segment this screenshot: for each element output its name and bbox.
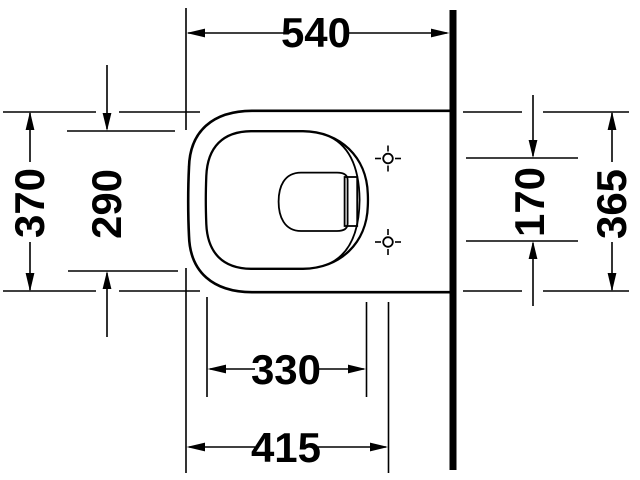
dimension-label-290: 290 (83, 169, 130, 239)
arrow-down-icon (608, 273, 617, 292)
dimension-label-370: 370 (6, 168, 53, 238)
dimension-label-415: 415 (251, 424, 321, 471)
arrow-left-icon (187, 29, 206, 38)
flush-opening-rect (345, 177, 358, 226)
dimension-label-365: 365 (588, 169, 635, 239)
arrow-down-icon (103, 113, 112, 131)
wall-line (450, 10, 457, 470)
dimension-label-330: 330 (251, 346, 321, 393)
dimension-bottom-inner-330: 330 (207, 297, 367, 397)
arrow-right-icon (370, 443, 388, 452)
dimension-label-170: 170 (506, 167, 553, 237)
arrow-down-icon (26, 273, 35, 292)
toilet-rim-outline (206, 131, 368, 269)
arrow-right-icon (431, 29, 450, 38)
arrow-up-icon (529, 241, 538, 259)
sump-outline (279, 173, 348, 231)
arrow-up-icon (103, 271, 112, 289)
dimension-label-540: 540 (281, 9, 351, 56)
toilet-dimension-drawing: 540 370 290 170 (0, 0, 640, 480)
arrow-left-icon (208, 365, 227, 374)
dimension-right-inner-170: 170 (466, 95, 578, 306)
fixing-hole-bottom-icon (375, 229, 401, 255)
technical-drawing-page: 540 370 290 170 (0, 0, 640, 480)
fixing-hole-top-icon (375, 146, 401, 172)
dimension-left-inner-290: 290 (67, 65, 178, 337)
arrow-left-icon (187, 443, 206, 452)
arrow-up-icon (608, 112, 617, 131)
arrow-right-icon (348, 365, 366, 374)
toilet-body (188, 111, 452, 292)
arrow-down-icon (529, 140, 538, 158)
arrow-up-icon (26, 112, 35, 131)
